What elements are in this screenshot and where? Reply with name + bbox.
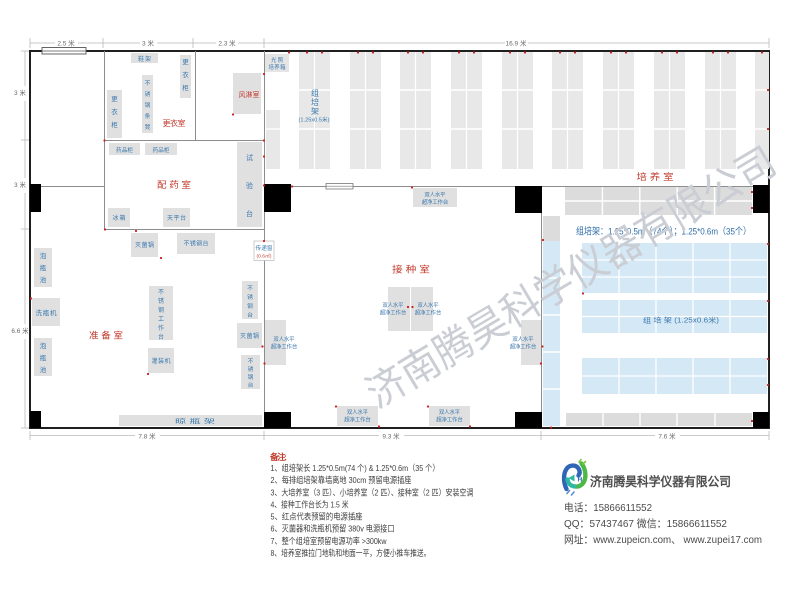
svg-text:工: 工 xyxy=(158,316,164,323)
svg-text:QQ：57437467 微信：15866611552: QQ：57437467 微信：15866611552 xyxy=(564,517,727,530)
svg-text:超净工作台: 超净工作台 xyxy=(344,416,370,424)
svg-text:台: 台 xyxy=(246,209,253,218)
svg-text:钢: 钢 xyxy=(248,373,254,381)
svg-text:16.9 米: 16.9 米 xyxy=(506,39,527,48)
svg-text:灌装机: 灌装机 xyxy=(152,357,171,365)
svg-text:泡: 泡 xyxy=(40,251,47,260)
svg-text:电话：15866611552: 电话：15866611552 xyxy=(564,501,652,514)
svg-text:超净工作台: 超净工作台 xyxy=(415,309,441,317)
svg-text:锈: 锈 xyxy=(145,90,151,98)
svg-text:作: 作 xyxy=(158,324,164,332)
svg-text:超净工作台: 超净工作台 xyxy=(436,416,462,424)
svg-text:准 备 室: 准 备 室 xyxy=(89,330,123,341)
svg-text:5、红点代表预留的电源插座: 5、红点代表预留的电源插座 xyxy=(271,512,363,522)
svg-text:洗瓶机: 洗瓶机 xyxy=(36,308,58,317)
svg-text:双人水平: 双人水平 xyxy=(417,301,439,309)
svg-text:架: 架 xyxy=(311,107,319,116)
svg-text:晾 瓶 架: 晾 瓶 架 xyxy=(175,418,215,426)
svg-text:7.8 米: 7.8 米 xyxy=(138,431,156,440)
svg-text:钢: 钢 xyxy=(158,306,164,314)
svg-text:7.6 米: 7.6 米 xyxy=(658,431,676,440)
svg-text:锈: 锈 xyxy=(248,365,254,373)
svg-text:组: 组 xyxy=(311,88,319,98)
svg-text:衣: 衣 xyxy=(111,107,118,116)
svg-text:更: 更 xyxy=(111,95,118,103)
svg-text:锈: 锈 xyxy=(158,297,164,305)
svg-text:泡: 泡 xyxy=(40,341,47,350)
svg-text:超净工作台: 超净工作台 xyxy=(422,198,448,206)
svg-text:(1.25x0.5米): (1.25x0.5米) xyxy=(299,116,330,124)
svg-text:灭菌锅: 灭菌锅 xyxy=(135,241,154,249)
svg-text:接 种 室: 接 种 室 xyxy=(392,264,430,275)
svg-text:2、每排组培架靠墙离地 30cm 预留电源插座: 2、每排组培架靠墙离地 30cm 预留电源插座 xyxy=(271,475,412,485)
svg-text:配 药 室: 配 药 室 xyxy=(157,179,191,190)
svg-text:衣: 衣 xyxy=(182,70,189,79)
svg-text:培 养 室: 培 养 室 xyxy=(637,171,674,182)
svg-text:传递窗: 传递窗 xyxy=(256,244,273,252)
svg-text:组 培 架 (1.25x0.6米): 组 培 架 (1.25x0.6米) xyxy=(643,316,719,325)
svg-text:冰箱: 冰箱 xyxy=(113,214,126,222)
svg-text:4、接种工作台长为 1.5 米: 4、接种工作台长为 1.5 米 xyxy=(271,499,349,509)
svg-text:超净工作台: 超净工作台 xyxy=(510,343,536,351)
svg-text:双人水平: 双人水平 xyxy=(347,408,369,416)
svg-text:鞋架: 鞋架 xyxy=(138,55,151,63)
svg-text:台: 台 xyxy=(247,311,253,319)
svg-text:药品柜: 药品柜 xyxy=(116,146,133,154)
svg-text:不锈钢台: 不锈钢台 xyxy=(184,240,209,248)
svg-text:锈: 锈 xyxy=(247,293,253,301)
svg-text:培养箱: 培养箱 xyxy=(269,63,287,71)
svg-text:网址：www.zupeicn.com、 www.zupei1: 网址：www.zupeicn.com、 www.zupei17.com xyxy=(564,533,762,546)
svg-text:H: H xyxy=(578,477,583,484)
svg-text:双人水平: 双人水平 xyxy=(439,408,461,416)
svg-text:更衣室: 更衣室 xyxy=(163,118,186,128)
svg-text:超净工作台: 超净工作台 xyxy=(271,343,297,351)
svg-text:8、培养室推拉门地轨和地面一平，方便小推车推送。: 8、培养室推拉门地轨和地面一平，方便小推车推送。 xyxy=(271,548,431,558)
svg-text:3 米: 3 米 xyxy=(142,39,154,48)
svg-text:培: 培 xyxy=(311,97,319,107)
svg-text:济南腾昊科学仪器有限公司: 济南腾昊科学仪器有限公司 xyxy=(590,474,731,489)
svg-text:双人水平: 双人水平 xyxy=(273,335,295,343)
svg-text:池: 池 xyxy=(40,365,47,374)
svg-text:不: 不 xyxy=(145,80,151,87)
svg-text:天平台: 天平台 xyxy=(167,214,186,222)
svg-text:双人水平: 双人水平 xyxy=(382,301,404,309)
svg-text:不: 不 xyxy=(248,358,254,365)
svg-text:钢: 钢 xyxy=(145,101,151,109)
svg-text:3 米: 3 米 xyxy=(14,180,26,189)
svg-text:瓶: 瓶 xyxy=(40,354,47,362)
svg-text:3、大培养室（3 匹）、小培养室（2 匹）、接种室（2 匹）: 3、大培养室（3 匹）、小培养室（2 匹）、接种室（2 匹）安装空调 xyxy=(271,487,474,497)
svg-text:(0.6㎡): (0.6㎡) xyxy=(257,253,272,260)
svg-text:1、组培架长 1.25*0.5m(74 个) & 1.25*: 1、组培架长 1.25*0.5m(74 个) & 1.25*0.6m（35 个） xyxy=(271,463,440,473)
svg-text:不: 不 xyxy=(247,285,253,292)
svg-text:更: 更 xyxy=(182,58,189,66)
svg-text:2.5 米: 2.5 米 xyxy=(57,39,75,48)
svg-text:6.6 米: 6.6 米 xyxy=(11,326,29,335)
svg-text:瓶: 瓶 xyxy=(40,264,47,272)
svg-text:台: 台 xyxy=(248,381,254,389)
svg-text:条: 条 xyxy=(145,112,151,120)
svg-text:验: 验 xyxy=(246,181,253,190)
svg-text:风淋室: 风淋室 xyxy=(239,90,260,99)
svg-text:试: 试 xyxy=(246,153,253,162)
svg-text:台: 台 xyxy=(158,333,164,341)
svg-text:2.3 米: 2.3 米 xyxy=(218,39,236,48)
svg-text:药品柜: 药品柜 xyxy=(153,146,170,154)
svg-text:6、灭菌器和洗瓶机预留 380v 电源接口: 6、灭菌器和洗瓶机预留 380v 电源接口 xyxy=(271,524,395,534)
svg-text:备注:: 备注: xyxy=(269,452,287,462)
svg-text:光照: 光照 xyxy=(271,56,284,64)
svg-text:柜: 柜 xyxy=(182,83,189,92)
svg-text:灭菌锅: 灭菌锅 xyxy=(240,332,259,340)
svg-text:柜: 柜 xyxy=(111,120,118,129)
svg-text:双人水平: 双人水平 xyxy=(424,191,446,199)
svg-text:钢: 钢 xyxy=(247,302,253,310)
svg-text:池: 池 xyxy=(40,275,47,284)
svg-text:凳: 凳 xyxy=(145,123,151,131)
svg-text:不: 不 xyxy=(158,289,164,296)
svg-text:7、整个组培室预留电源功率 >300kw: 7、整个组培室预留电源功率 >300kw xyxy=(271,536,388,546)
svg-text:超净工作台: 超净工作台 xyxy=(380,309,406,317)
svg-text:9.3 米: 9.3 米 xyxy=(382,431,400,440)
svg-text:3 米: 3 米 xyxy=(14,88,26,97)
